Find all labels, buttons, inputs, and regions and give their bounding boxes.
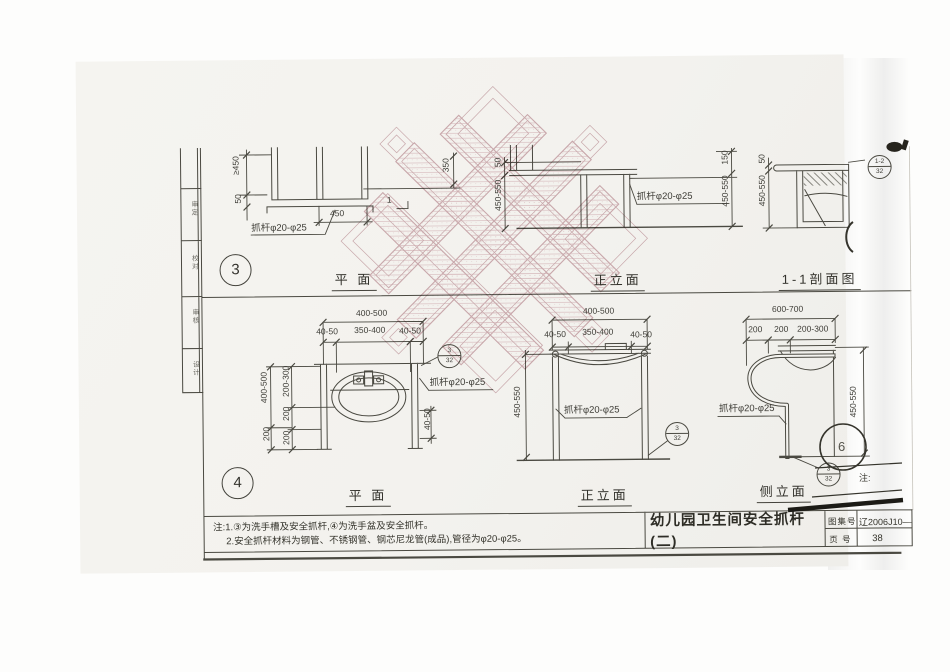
dim-label: 50 xyxy=(757,154,766,164)
dim-label: 40-50 xyxy=(316,327,338,336)
dim-label: 抓杆φ20-φ25 xyxy=(564,405,620,415)
atlas-number-label: 图集号 xyxy=(828,515,857,527)
dim-label: 450 xyxy=(330,209,344,218)
dim-label: 200 xyxy=(282,407,291,421)
notes-line-2: 2.安全抓杆材料为钢管、不锈钢管、钢芯尼龙管(成品),管径为φ20-φ25。 xyxy=(226,530,527,547)
dim-label: 450-550 xyxy=(758,175,767,206)
dim-label: 200 xyxy=(748,325,762,334)
scanned-drawing-sheet: ≥45050450350抓杆φ20-φ25150450-550抓杆φ20-φ25… xyxy=(0,0,950,672)
binding-strip-label: 审定 xyxy=(183,201,199,217)
dim-label: 200 xyxy=(282,431,291,445)
dim-label: 40-50 xyxy=(544,330,566,339)
dim-label: 400-500 xyxy=(260,372,269,403)
binding-strip-label: 设计 xyxy=(184,361,200,377)
dim-label: 350 xyxy=(442,158,451,172)
dim-label: 200 xyxy=(774,325,788,334)
dim-label: 350-400 xyxy=(582,328,613,337)
page-number-value: 38 xyxy=(872,533,883,544)
dim-label: 40-50 xyxy=(423,408,432,430)
fig3-section xyxy=(763,157,866,231)
dim-label: 抓杆φ20-φ25 xyxy=(430,378,486,388)
dim-label: 450-550 xyxy=(721,175,730,206)
view-caption: 正立面 xyxy=(591,269,645,292)
view-caption: 1-1剖面图 xyxy=(779,268,861,291)
page-number-label: 页 号 xyxy=(829,533,851,545)
dim-label: 1 xyxy=(387,196,392,205)
dim-label: 450-550 xyxy=(513,386,522,417)
dim-label: 40-50 xyxy=(630,330,652,339)
dim-label: 600-700 xyxy=(772,305,803,314)
dim-label: 50 xyxy=(494,158,503,168)
view-caption: 平 面 xyxy=(332,269,377,291)
figure-number-circle: 3 xyxy=(219,254,251,286)
dim-label: ≥450 xyxy=(231,156,240,175)
view-caption: 平 面 xyxy=(346,485,391,507)
sheet-title: 幼儿园卫生间安全抓杆(二) xyxy=(650,512,822,548)
dim-label: 200-300 xyxy=(797,324,828,333)
dim-label: 抓杆φ20-φ25 xyxy=(719,404,775,414)
dim-label: 450-550 xyxy=(849,386,858,417)
detail-reference-bubble: 332 xyxy=(437,344,461,368)
dim-label: 400-500 xyxy=(356,309,387,318)
detail-reference-bubble: 1-232 xyxy=(867,155,891,179)
drawing-page: ≥45050450350抓杆φ20-φ25150450-550抓杆φ20-φ25… xyxy=(76,54,849,573)
fig4-side-elevation xyxy=(717,315,869,468)
dim-label: 150 xyxy=(720,150,729,164)
dim-label: 400-500 xyxy=(583,307,614,316)
dim-label: 200-300 xyxy=(281,366,290,397)
dim-label: 200 xyxy=(262,427,271,441)
neighbor-note-label: 注: xyxy=(859,471,871,484)
binding-strip-label: 校对 xyxy=(183,255,199,271)
view-caption: 正立面 xyxy=(578,484,632,507)
neighbor-figure-number: 6 xyxy=(838,439,845,454)
dim-label: 抓杆φ20-φ25 xyxy=(637,192,693,202)
detail-reference-bubble: 332 xyxy=(665,422,689,446)
scan-smudge xyxy=(886,139,909,152)
detail-reference-bubble: 332 xyxy=(816,462,840,486)
dim-label: 50 xyxy=(234,194,243,204)
dim-label: 450-550 xyxy=(494,180,503,211)
binding-strip-label: 审核 xyxy=(184,309,200,325)
dim-label: 抓杆φ20-φ25 xyxy=(251,223,307,233)
figure-number-circle: 4 xyxy=(221,467,253,499)
dim-label: 350-400 xyxy=(354,326,385,335)
view-caption: 侧立面 xyxy=(757,481,811,504)
dim-label: 40-50 xyxy=(399,326,421,335)
atlas-number-value: 辽2006J10— xyxy=(859,515,912,529)
